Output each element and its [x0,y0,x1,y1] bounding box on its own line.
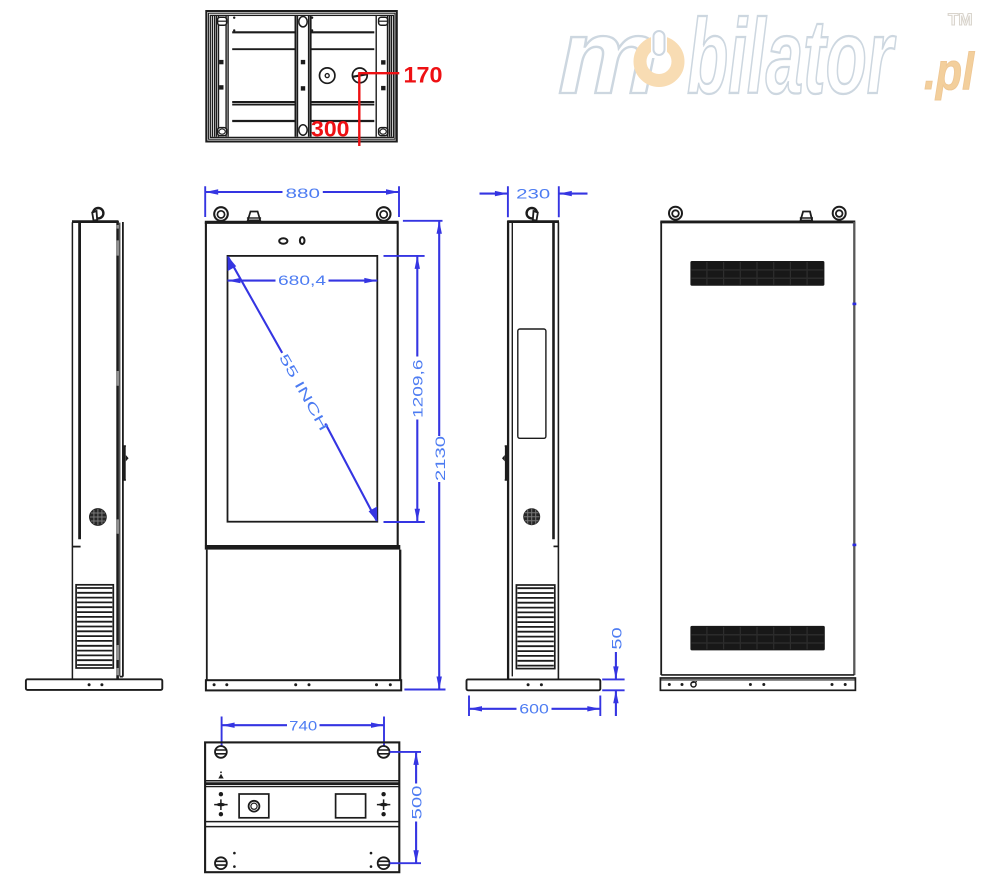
svg-text:230: 230 [516,186,550,201]
svg-text:2130: 2130 [433,436,448,481]
svg-text:TM: TM [948,10,973,29]
svg-text:680,4: 680,4 [278,273,327,288]
svg-text:880: 880 [286,186,321,201]
svg-text:500: 500 [409,786,424,820]
svg-text:50: 50 [609,627,624,649]
svg-text:300: 300 [311,116,350,141]
svg-text:170: 170 [404,62,443,87]
svg-text:600: 600 [519,702,549,717]
svg-text:740: 740 [289,719,317,734]
svg-text:.pl: .pl [924,43,975,101]
svg-text:1209,6: 1209,6 [410,360,425,419]
svg-text:bilator: bilator [687,0,897,116]
